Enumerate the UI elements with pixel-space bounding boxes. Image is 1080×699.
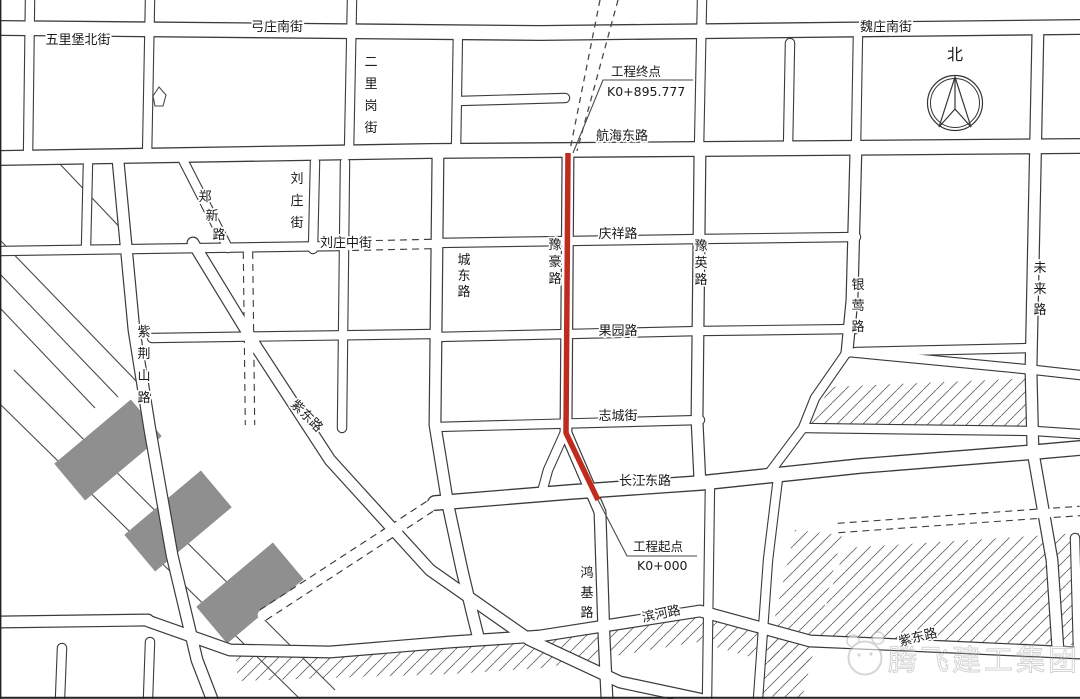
north-label: 北 bbox=[947, 45, 963, 64]
map-canvas: 五里堡北街 弓庄南街 魏庄南街 二里岗街 航海东路 郑新路 刘庄街 刘庄中街 城… bbox=[0, 0, 1080, 699]
road-label-weizhuang: 魏庄南街 bbox=[860, 19, 912, 35]
road-label-yuying: 豫英路 bbox=[694, 239, 707, 288]
watermark-text: 腾飞建工集团 bbox=[888, 643, 1080, 677]
road-label-changjiang: 长江东路 bbox=[619, 473, 671, 489]
road-label-yinying: 银莺路 bbox=[851, 278, 864, 335]
project-location-map: 五里堡北街 弓庄南街 魏庄南街 二里岗街 航海东路 郑新路 刘庄街 刘庄中街 城… bbox=[0, 0, 1080, 699]
road-label-hongji: 鸿基路 bbox=[580, 565, 593, 621]
road-label-liuzhuang-middle: 刘庄中街 bbox=[320, 235, 372, 251]
endpoint-title: 工程终点 bbox=[611, 64, 661, 79]
watermark-logo-face-icon bbox=[849, 642, 882, 675]
road-label-weilai: 未来路 bbox=[1033, 261, 1046, 318]
startpoint-title: 工程起点 bbox=[633, 539, 683, 554]
route-extension-dashed bbox=[570, 0, 600, 150]
startpoint-chainage: K0+000 bbox=[637, 558, 688, 573]
road-label-gongzhuang: 弓庄南街 bbox=[251, 19, 303, 35]
corridor-line bbox=[0, 240, 140, 385]
corridor-line bbox=[0, 274, 118, 397]
north-arrow: 北 bbox=[928, 45, 983, 131]
watermark-logo-eye-icon bbox=[869, 652, 872, 655]
road-label-hanghai: 航海东路 bbox=[596, 128, 648, 144]
traffic-island bbox=[153, 87, 166, 106]
road-label-qingxiang: 庆祥路 bbox=[598, 226, 637, 242]
road-label-chengdong: 城东路 bbox=[457, 253, 470, 300]
road-label-liuzhuang: 刘庄街 bbox=[290, 172, 303, 231]
road-label-zhengxin: 郑新路 bbox=[198, 190, 225, 243]
endpoint-chainage: K0+895.777 bbox=[607, 84, 685, 99]
road-label-zhicheng: 志城街 bbox=[598, 409, 637, 424]
watermark-logo-ear-icon bbox=[872, 632, 884, 644]
road-label-yuhao: 豫豪路 bbox=[548, 238, 561, 287]
road-label-wulibao: 五里堡北街 bbox=[45, 32, 110, 48]
watermark-logo-eye-icon bbox=[857, 653, 860, 656]
road-label-erligang: 二里岗街 bbox=[364, 55, 377, 136]
hatch-area-southeast bbox=[815, 533, 1080, 645]
road-label-guoyuan: 果园路 bbox=[598, 323, 637, 339]
